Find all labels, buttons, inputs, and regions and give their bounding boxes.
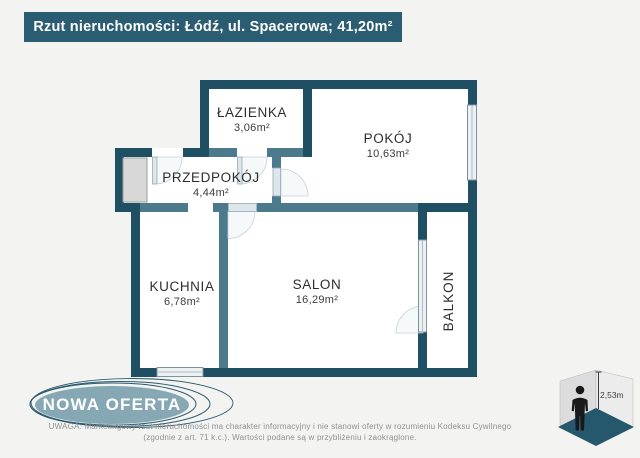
floorplan-page: Rzut nieruchomości: Łódź, ul. Spacerowa;… [0, 0, 640, 458]
ceiling-height-value: 2,53m [600, 390, 624, 400]
room-label-lazienka: ŁAZIENKA 3,06m² [192, 105, 312, 135]
room-door-leaf [273, 168, 281, 196]
room-label-salon: SALON 16,29m² [257, 277, 377, 307]
wardrobe [123, 158, 147, 202]
room-name: PRZEDPOKÓJ [151, 170, 271, 186]
disclaimer-line-1: UWAGA: Marketingowy rzut nieruchomości m… [28, 421, 532, 432]
room-area: 16,29m² [257, 293, 377, 307]
new-offer-badge-label: NOWA OFERTA [32, 395, 192, 415]
room-name: KUCHNIA [122, 279, 242, 295]
height-indicator-3d [558, 370, 634, 446]
disclaimer: UWAGA: Marketingowy rzut nieruchomości m… [28, 421, 532, 443]
room-area: 10,63m² [328, 147, 448, 161]
room-name: ŁAZIENKA [192, 105, 312, 121]
room-area: 3,06m² [192, 121, 312, 135]
room-name: SALON [257, 277, 377, 293]
room-label-przedpokoj: PRZEDPOKÓJ 4,44m² [151, 170, 271, 200]
room-label-pokoj: POKÓJ 10,63m² [328, 131, 448, 161]
floorplan-drawing [0, 0, 640, 458]
room-name: POKÓJ [328, 131, 448, 147]
room-label-kuchnia: KUCHNIA 6,78m² [122, 279, 242, 309]
room-area: 4,44m² [151, 186, 271, 200]
room-area: 6,78m² [122, 295, 242, 309]
room-label-balkon: BALKON [441, 261, 457, 341]
salon-door-leaf [229, 204, 257, 212]
disclaimer-line-2: (zgodnie z art. 71 k.c.). Wartości podan… [28, 432, 532, 443]
